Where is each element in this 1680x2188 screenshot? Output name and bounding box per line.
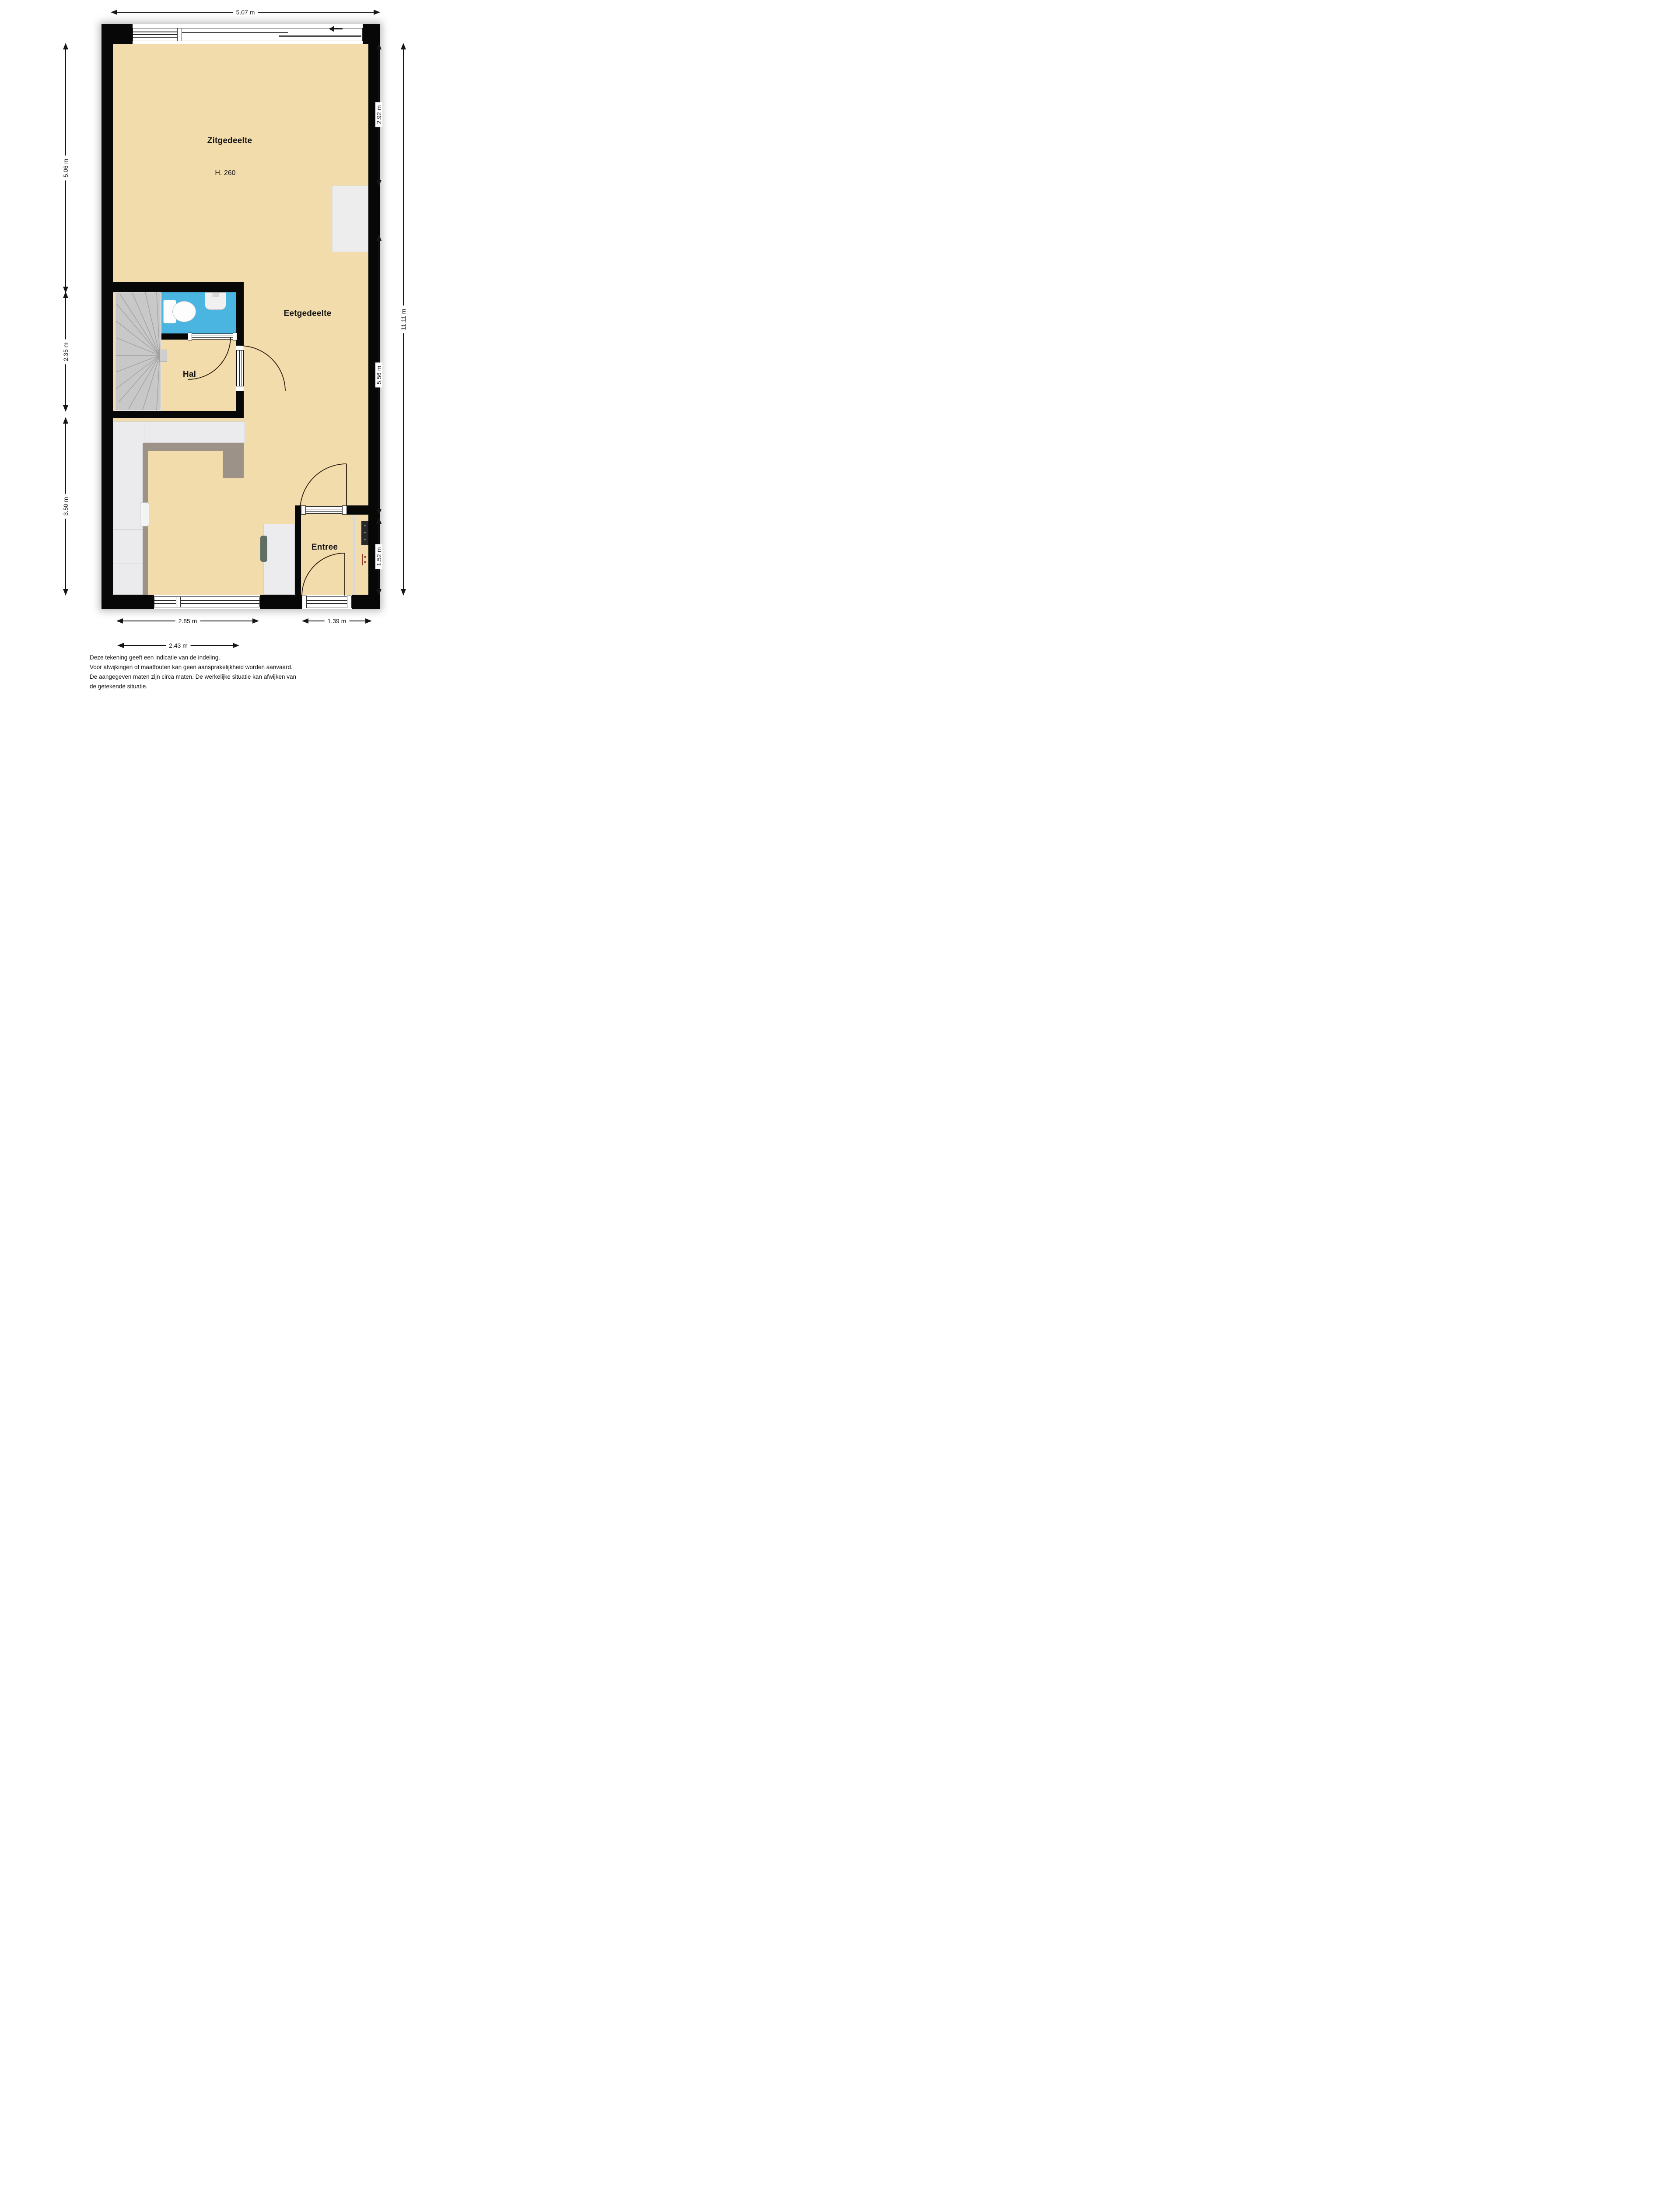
kitchen-sink — [140, 502, 149, 526]
hall-dining-door-jamb-bottom — [236, 386, 244, 391]
meter-box-dot-1 — [364, 525, 366, 526]
dim-right-top: 2.92 m — [378, 44, 379, 186]
entree-door-line2 — [301, 511, 346, 512]
hall-dining-door-line2 — [241, 351, 242, 386]
window-top-line2 — [133, 34, 178, 35]
dim-left-mid: 2.35 m — [65, 292, 66, 411]
kitchen-counter-edge-horizontal — [143, 443, 244, 451]
disclaimer-line-3: De aangegeven maten zijn circa maten. De… — [90, 672, 435, 682]
staircase — [115, 292, 161, 411]
dim-left-mid-label: 2.35 m — [62, 339, 69, 364]
front-door-band — [302, 596, 352, 607]
hall-dining-door-jamb-top — [236, 345, 244, 351]
dim-right-entry-label: 1.52 m — [375, 544, 382, 569]
label-dining: Eetgedeelte — [284, 309, 332, 319]
radiator-valve-bar — [362, 554, 363, 565]
wall-top-pier-left — [101, 24, 133, 44]
sliding-door-upper-leaf — [182, 32, 288, 33]
toilet-bowl — [172, 301, 196, 322]
window-kitchen-line1 — [154, 600, 259, 601]
window-kitchen-band — [154, 596, 260, 607]
kitchen-cabinet-division-2 — [113, 529, 144, 530]
toilet-door-jamb-left — [188, 333, 192, 340]
staircase-newel-post — [157, 350, 167, 362]
dim-width-total: 5.07 m — [112, 12, 379, 13]
label-ceiling-height: H. 260 — [215, 169, 235, 177]
kitchen-counter-edge-vertical-leg — [223, 451, 244, 478]
dim-left-top: 5.06 m — [65, 44, 66, 292]
entree-interior-door-jamb-left — [301, 505, 306, 515]
front-door-line2 — [302, 603, 351, 604]
dim-bottom-inner: 2.43 m — [118, 645, 238, 646]
dim-bottom-entry-label: 1.39 m — [325, 617, 350, 624]
radiator-valve-dot-2 — [364, 561, 366, 563]
entree-interior-door-jamb-right — [342, 505, 347, 515]
dim-left-top-label: 5.06 m — [62, 156, 69, 181]
dim-bottom-kitchen-label: 2.85 m — [175, 617, 200, 624]
toilet-sink-faucet — [213, 293, 219, 297]
wall-left — [101, 24, 113, 609]
dim-left-bottom: 3.50 m — [65, 418, 66, 595]
window-top-mullion — [177, 28, 182, 41]
entree-interior-door-band — [301, 506, 347, 514]
dim-right-top-label: 2.92 m — [375, 102, 382, 127]
floorplan-page: { "rooms": { "living": { "label": "Zitge… — [0, 0, 504, 713]
meter-cupboard-partition — [353, 515, 355, 595]
disclaimer-line-1: Deze tekening geeft een indicatie van de… — [90, 653, 435, 663]
kitchen-cabinet-division-3 — [113, 564, 144, 564]
wall-stairblock-top — [101, 282, 244, 292]
wall-entree-top-right-segment — [347, 505, 368, 515]
meter-box-dot-2 — [364, 532, 366, 533]
wall-below-stairs — [101, 411, 244, 418]
front-door-jamb-left — [302, 596, 307, 608]
cupboard-right-wall — [332, 186, 368, 252]
front-door-jamb-right — [347, 596, 352, 608]
meter-box-dot-3 — [364, 539, 366, 540]
window-kitchen-line2 — [154, 603, 259, 604]
desk-chair — [260, 536, 267, 562]
dim-width-total-label: 5.07 m — [233, 9, 258, 16]
dim-bottom-kitchen: 2.85 m — [117, 621, 258, 621]
dim-right-total: 11.11 m — [403, 44, 404, 595]
sliding-door-lower-leaf — [279, 35, 361, 37]
wall-toilet-hall-segment — [161, 333, 188, 340]
dim-left-bottom-label: 3.50 m — [62, 494, 69, 519]
disclaimer-line-2: Voor afwijkingen of maatfouten kan geen … — [90, 663, 435, 672]
window-top-line1 — [133, 32, 178, 32]
desk — [263, 524, 295, 595]
dim-right-mid-label: 5.56 m — [375, 362, 382, 387]
label-living: Zitgedeelte — [207, 136, 252, 146]
wall-entree-left — [295, 505, 301, 595]
dim-bottom-entry: 1.39 m — [303, 621, 371, 621]
hall-dining-door-band — [237, 350, 243, 386]
toilet-door-band — [188, 333, 237, 340]
radiator-valve-dot-1 — [364, 556, 366, 558]
disclaimer-line-4: de getekende situatie. — [90, 682, 435, 691]
dim-right-entry: 1.52 m — [378, 518, 379, 595]
toilet-door-jamb-right — [233, 333, 237, 340]
dim-right-mid: 5.56 m — [378, 235, 379, 515]
kitchen-cabinet-division-1 — [113, 475, 144, 475]
toilet-door-line2 — [188, 337, 237, 338]
dim-bottom-inner-label: 2.43 m — [166, 642, 191, 649]
hall-dining-door-line1 — [239, 351, 240, 386]
label-hall: Hal — [183, 370, 196, 379]
window-top — [133, 28, 363, 41]
desk-division — [264, 556, 294, 556]
window-kitchen-mullion — [176, 597, 181, 607]
disclaimer-text: Deze tekening geeft een indicatie van de… — [90, 653, 435, 691]
window-top-line3 — [133, 37, 178, 38]
label-entry: Entree — [311, 543, 338, 552]
entree-door-line1 — [301, 509, 346, 510]
front-door-line1 — [302, 600, 351, 601]
toilet-door-line1 — [188, 336, 237, 337]
dim-right-total-label: 11.11 m — [400, 305, 407, 333]
